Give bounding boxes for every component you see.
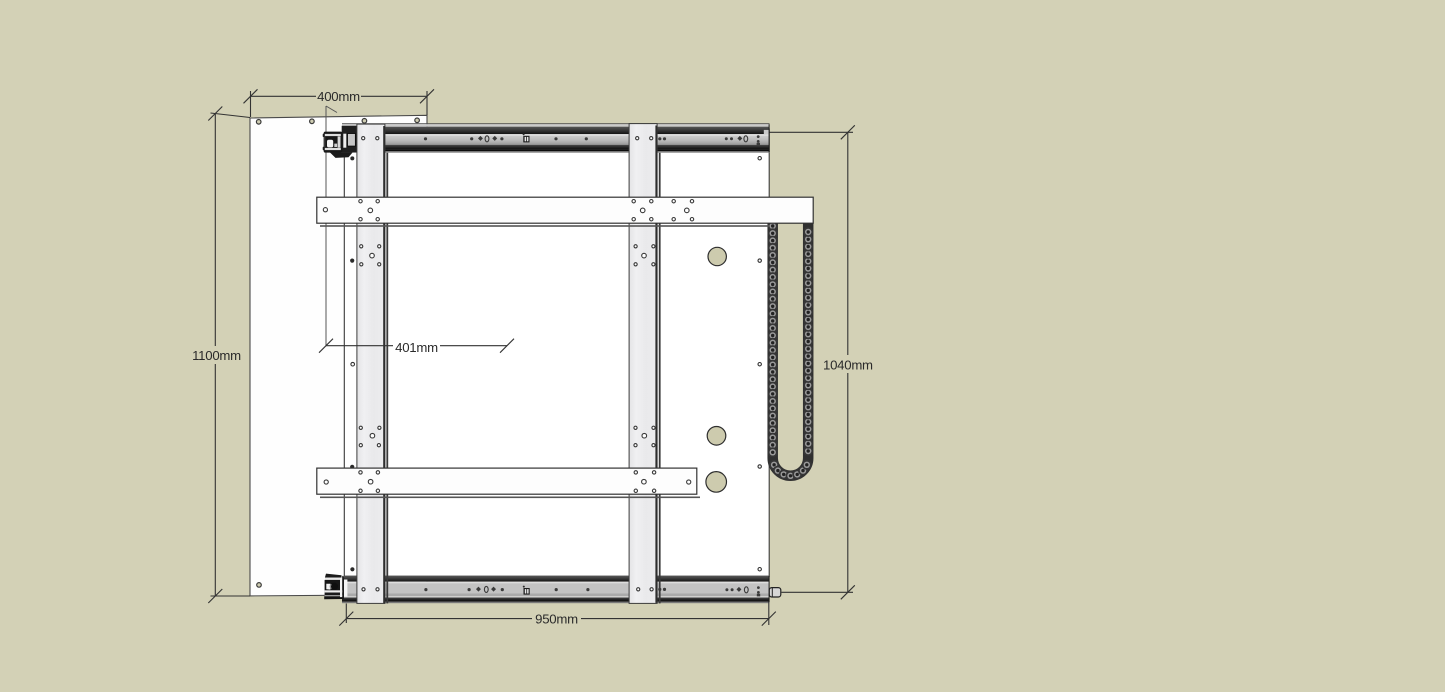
svg-text:950mm: 950mm [535, 611, 578, 626]
svg-text:1100mm: 1100mm [192, 348, 241, 363]
svg-text:401mm: 401mm [395, 340, 438, 355]
svg-text:400mm: 400mm [317, 89, 360, 104]
svg-text:1040mm: 1040mm [823, 357, 873, 372]
